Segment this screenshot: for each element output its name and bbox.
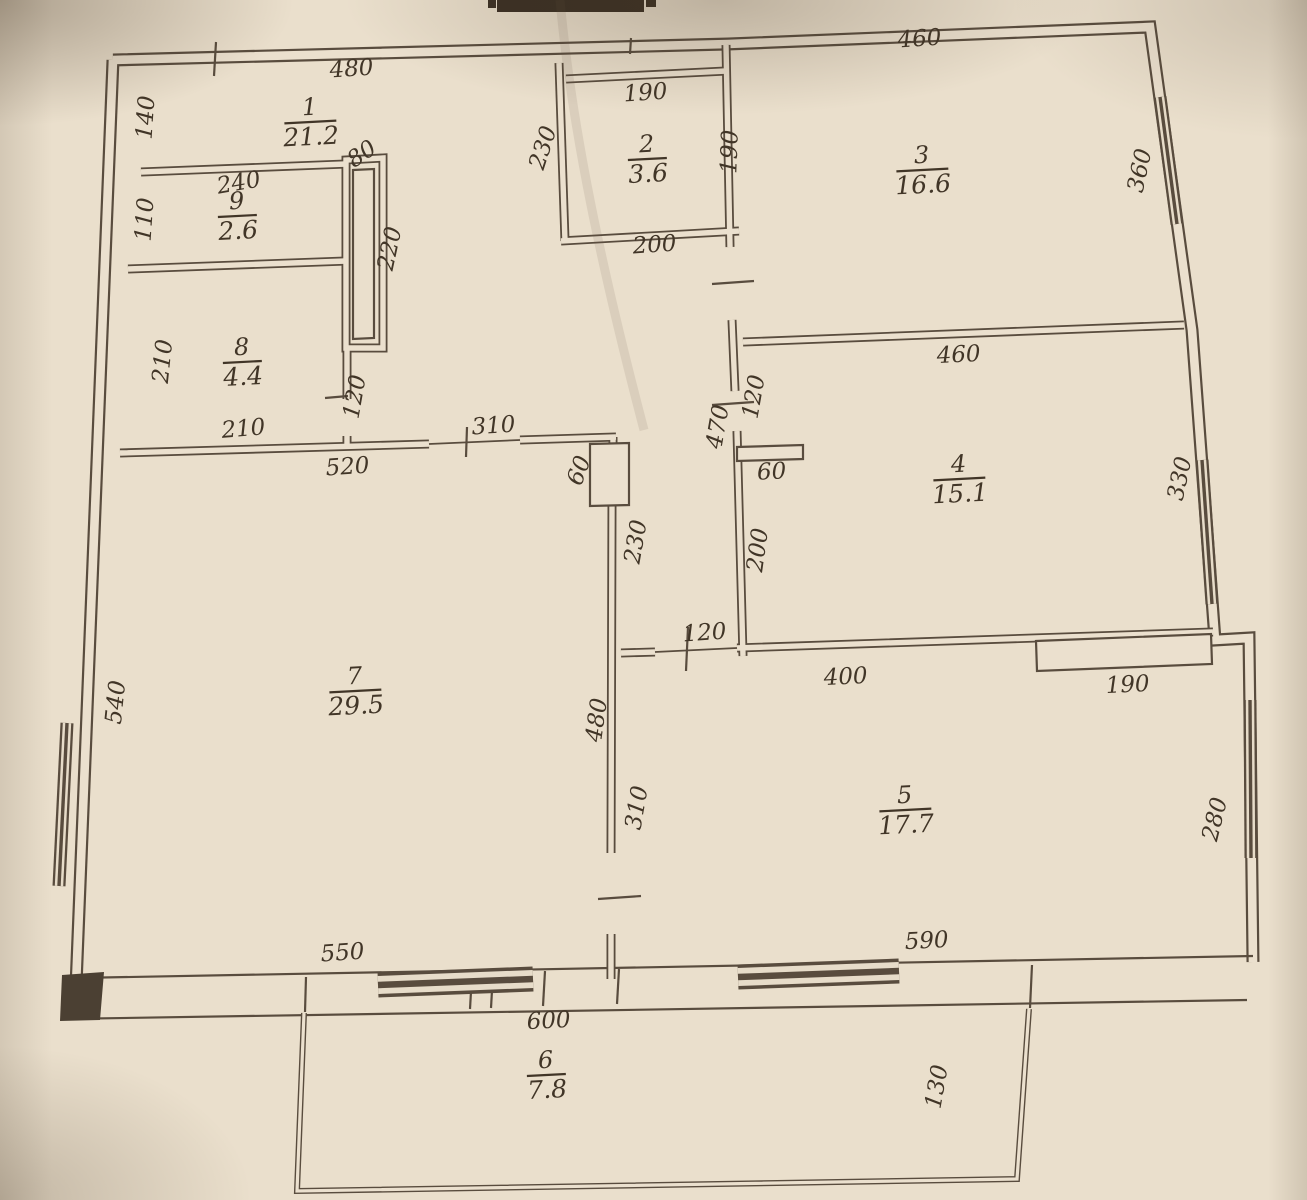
room-label: 729.5	[325, 661, 385, 722]
dimension-label: 480	[328, 55, 375, 84]
room-label: 84.4	[220, 332, 264, 392]
room-area: 16.6	[895, 169, 952, 201]
room-area: 15.1	[932, 478, 989, 510]
dimension-label: 120	[682, 619, 728, 648]
dimension-label: 200	[742, 526, 774, 574]
dimension-label: 280	[1197, 795, 1233, 845]
room-number: 7	[346, 662, 363, 691]
dimension-label: 190	[1105, 671, 1150, 699]
corner-pier	[60, 972, 104, 1021]
room-area: 3.6	[628, 158, 669, 189]
dimension-label: 220	[373, 224, 408, 273]
dimension-labels: 4801402401108019023019020046036022021021…	[101, 25, 1233, 1111]
dimension-label: 550	[320, 939, 366, 968]
dimension-label: 210	[148, 338, 179, 385]
dimension-label: 230	[524, 123, 563, 174]
room-number: 3	[913, 141, 930, 170]
room-label: 316.6	[893, 140, 952, 201]
dimension-label: 330	[1163, 454, 1198, 502]
dimension-label: 600	[526, 1007, 571, 1035]
room-number: 6	[537, 1046, 554, 1075]
dimension-label: 310	[620, 784, 653, 832]
window-hatch	[1202, 460, 1212, 604]
dimension-label: 190	[623, 79, 669, 108]
wall-column	[590, 443, 629, 506]
room-label: 67.8	[525, 1045, 568, 1105]
dimension-label: 310	[471, 412, 517, 441]
window-hatch	[1250, 700, 1251, 858]
wall-jog	[1036, 634, 1212, 671]
room-area: 21.2	[282, 121, 340, 153]
room-number: 5	[896, 781, 913, 810]
dimension-label: 120	[737, 373, 770, 421]
room-area: 17.7	[878, 809, 935, 841]
dimension-label: 130	[920, 1063, 953, 1111]
room-number: 2	[637, 130, 655, 159]
cut-off-title-bar	[488, 0, 656, 12]
room-number: 8	[233, 333, 250, 362]
dimension-label: 200	[631, 231, 678, 260]
room-label: 23.6	[626, 129, 669, 189]
room-area: 4.4	[222, 361, 264, 392]
dimension-label: 590	[904, 927, 949, 955]
room-label: 415.1	[930, 449, 989, 510]
dimension-label: 460	[896, 25, 943, 54]
room-area: 29.5	[327, 690, 385, 722]
window-hatch	[59, 723, 67, 886]
door-opening-line	[429, 440, 520, 444]
dimension-label: 60	[756, 458, 787, 485]
room-label: 517.7	[876, 780, 935, 841]
room-area: 2.6	[217, 215, 259, 246]
dimension-label: 360	[1123, 146, 1158, 194]
door-opening-line	[655, 648, 737, 652]
bottom-wall	[60, 956, 1253, 1021]
dimension-label: 540	[101, 679, 131, 725]
room-area: 7.8	[527, 1074, 568, 1105]
room-number: 4	[949, 450, 967, 479]
dimension-label: 230	[619, 518, 652, 567]
dimension-label: 400	[822, 663, 868, 691]
room-number: 1	[301, 93, 318, 122]
window-hatch	[738, 971, 899, 977]
dimension-label: 520	[325, 453, 371, 482]
window-hatch	[378, 979, 533, 985]
balcony-walls	[297, 1009, 1029, 1191]
dimension-label: 110	[131, 197, 160, 243]
dimension-label: 460	[935, 341, 981, 369]
window-hatch	[1160, 97, 1177, 224]
duct-shaft	[353, 169, 374, 339]
floor-plan-drawing: 4801402401108019023019020046036022021021…	[0, 0, 1307, 1200]
paper-crease	[560, 0, 644, 430]
dimension-label: 210	[219, 414, 266, 444]
dimension-label: 140	[132, 95, 161, 141]
scanned-floor-plan-page: 4801402401108019023019020046036022021021…	[0, 0, 1307, 1200]
room-number: 9	[228, 187, 245, 216]
dimension-label: 190	[716, 129, 744, 174]
room-label: 121.2	[280, 92, 340, 153]
dimension-label: 470	[701, 403, 734, 452]
